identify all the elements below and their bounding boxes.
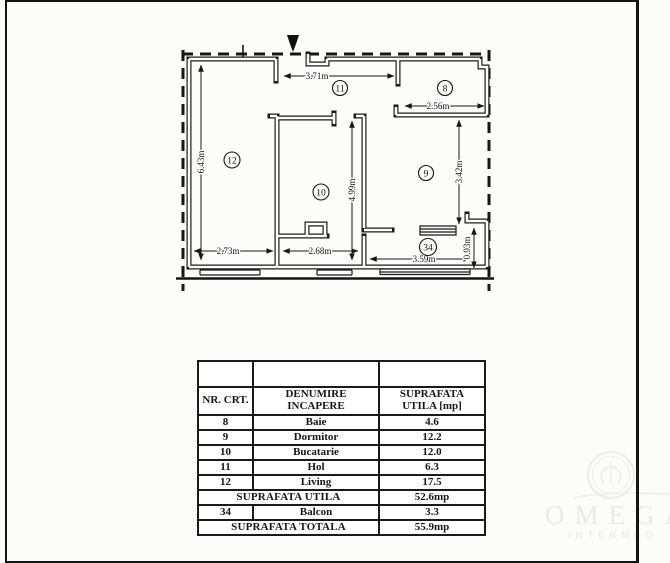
cell-nr: 8 bbox=[198, 415, 253, 430]
entrance-arrow-icon bbox=[287, 35, 299, 52]
cell-name: Baie bbox=[253, 415, 379, 430]
subtotal-value: 52.6mp bbox=[379, 490, 485, 505]
areas-table: NR. CRT. DENUMIRE INCAPERE SUPRAFATA UTI… bbox=[197, 360, 486, 536]
dimension-label-kitchen-height: 4.99m bbox=[347, 179, 357, 202]
header-denumire: DENUMIRE INCAPERE bbox=[253, 387, 379, 415]
watermark: OMEGA INTERMED bbox=[540, 440, 670, 563]
table-header-row: NR. CRT. DENUMIRE INCAPERE SUPRAFATA UTI… bbox=[198, 387, 485, 415]
room-number-badges: 11 8 12 10 9 34 bbox=[224, 81, 453, 256]
table-row: 11 Hol 6.3 bbox=[198, 460, 485, 475]
cell-area: 12.2 bbox=[379, 430, 485, 445]
header-nr-crt: NR. CRT. bbox=[198, 387, 253, 415]
room-label-bedroom: 9 bbox=[424, 170, 429, 180]
watermark-subtitle-text: INTERMED bbox=[568, 530, 658, 541]
cell-area: 3.3 bbox=[379, 505, 485, 520]
dimension-label-hall-width: 3.71m bbox=[306, 71, 329, 81]
cell-area: 17.5 bbox=[379, 475, 485, 490]
table-row: 12 Living 17.5 bbox=[198, 475, 485, 490]
subtotal-row: SUPRAFATA UTILA 52.6mp bbox=[198, 490, 485, 505]
cell-area: 4.6 bbox=[379, 415, 485, 430]
total-value: 55.9mp bbox=[379, 520, 485, 535]
dimension-label-balcony-width: 3.59m bbox=[413, 254, 436, 264]
header-suprafata: SUPRAFATA UTILA [mp] bbox=[379, 387, 485, 415]
cell-nr: 10 bbox=[198, 445, 253, 460]
table-row: 9 Dormitor 12.2 bbox=[198, 430, 485, 445]
cell-nr: 9 bbox=[198, 430, 253, 445]
cell-nr: 34 bbox=[198, 505, 253, 520]
watermark-brand-text: OMEGA bbox=[545, 500, 670, 531]
cell-name: Living bbox=[253, 475, 379, 490]
table-row-balcony: 34 Balcon 3.3 bbox=[198, 505, 485, 520]
table-row: 10 Bucatarie 12.0 bbox=[198, 445, 485, 460]
subtotal-label: SUPRAFATA UTILA bbox=[198, 490, 379, 505]
room-label-kitchen: 10 bbox=[316, 189, 326, 199]
table-row: 8 Baie 4.6 bbox=[198, 415, 485, 430]
dimension-label-living-height: 6.43m bbox=[196, 151, 206, 174]
floor-plan: 3.71m 2.56m 6.43m 4.99m 3.42m 2.73m 2.68… bbox=[0, 0, 670, 350]
cell-nr: 12 bbox=[198, 475, 253, 490]
room-label-hall: 11 bbox=[335, 85, 344, 95]
room-label-balcony: 34 bbox=[423, 244, 433, 254]
cell-name: Balcon bbox=[253, 505, 379, 520]
cell-area: 6.3 bbox=[379, 460, 485, 475]
scanned-floorplan-page: 3.71m 2.56m 6.43m 4.99m 3.42m 2.73m 2.68… bbox=[0, 0, 670, 563]
cell-nr: 11 bbox=[198, 460, 253, 475]
cell-area: 12.0 bbox=[379, 445, 485, 460]
cell-name: Hol bbox=[253, 460, 379, 475]
cell-name: Dormitor bbox=[253, 430, 379, 445]
total-label: SUPRAFATA TOTALA bbox=[198, 520, 379, 535]
dimension-label-balcony-depth: 0.93m bbox=[462, 237, 472, 260]
dimension-label-living-width: 2.73m bbox=[217, 246, 240, 256]
room-label-living: 12 bbox=[227, 157, 237, 167]
table-empty-row bbox=[198, 361, 485, 387]
dimension-label-kitchen-width: 2.68m bbox=[309, 246, 332, 256]
total-row: SUPRAFATA TOTALA 55.9mp bbox=[198, 520, 485, 535]
room-label-bath: 8 bbox=[443, 85, 448, 95]
cell-name: Bucatarie bbox=[253, 445, 379, 460]
dimension-label-bedroom-height: 3.42m bbox=[454, 161, 464, 184]
dimension-label-bath-width: 2.56m bbox=[427, 101, 450, 111]
